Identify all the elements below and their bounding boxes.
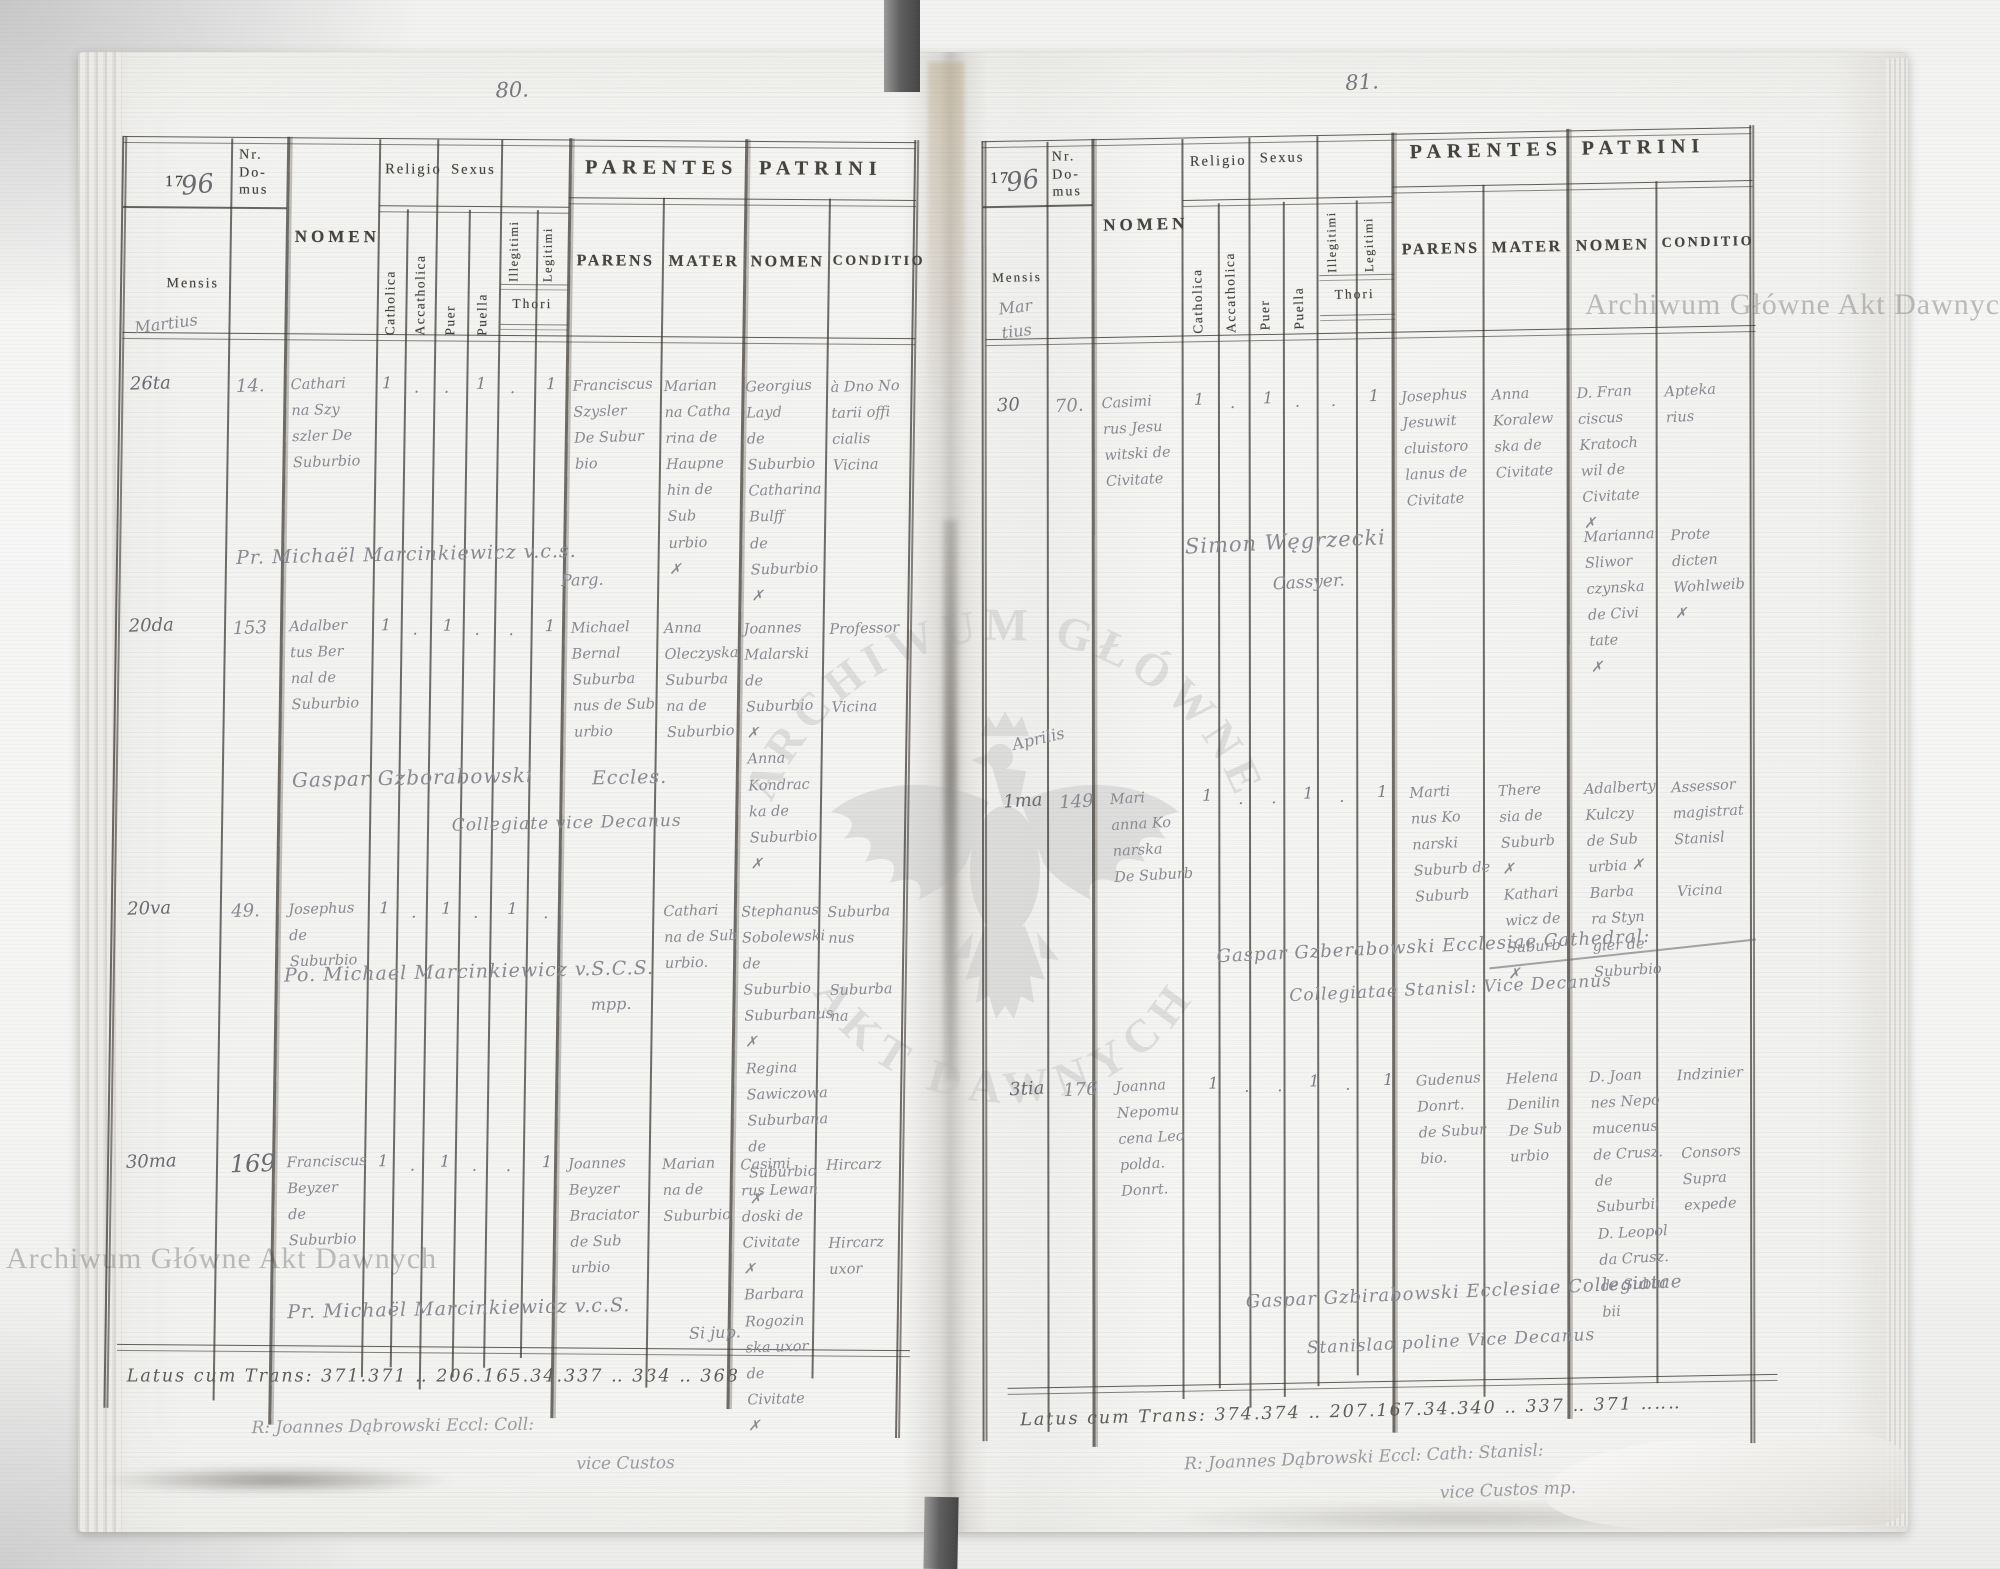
binding-strap-bottom xyxy=(923,1497,958,1569)
tally-mark: 1 xyxy=(1383,1070,1394,1089)
grid-line xyxy=(1181,139,1184,1399)
tally-mark: . xyxy=(509,620,514,639)
tally-mark: 1 xyxy=(441,899,451,918)
record-nomen: Joanna Nepomu cena Leo polda. Donrt. xyxy=(1115,1071,1204,1206)
dirt-smudge xyxy=(95,1466,455,1494)
tally-mark: 1 xyxy=(1309,1071,1320,1090)
grid-line xyxy=(1392,180,1752,193)
header-puella: Puella xyxy=(1289,231,1307,329)
gutter-fold-shadow xyxy=(944,520,957,1080)
tally-mark: . xyxy=(506,1156,511,1175)
record-conditio: Assessor magistrat Stanisl Vicina xyxy=(1671,771,1764,906)
header-sexus: Sexus xyxy=(451,162,496,179)
tally-mark: . xyxy=(1295,392,1300,411)
record-parens: Joannes Beyzer Braciator de Sub urbio xyxy=(568,1149,658,1282)
month-annotation: Mar tius xyxy=(997,294,1036,346)
tally-mark: . xyxy=(1331,391,1336,410)
header-mater: MATER xyxy=(669,253,740,271)
record-mater: Anna Oleczyska Suburba na de Suburbio xyxy=(664,614,742,747)
tally-mark: 1 xyxy=(378,1151,388,1170)
record-mater: Marian na Catha rina de Haupne hin de Su… xyxy=(663,372,743,583)
tally-mark: 1 xyxy=(382,373,392,392)
tally-mark: 1 xyxy=(379,898,389,917)
register-page-left: 80. 17 96 Nr. Do- mus Mensis NOMEN Relig… xyxy=(116,58,918,1472)
signature-flourish: Cassyer. xyxy=(1272,565,1346,600)
priest-signature: Pr. Michaël Marcinkiewicz v.c.s. xyxy=(236,534,577,575)
record-nr: 153 xyxy=(232,612,267,645)
header-illegitimi: Illegitimi xyxy=(507,210,522,282)
header-patrini: PATRINI xyxy=(1581,135,1705,161)
header-legitimi: Legitimi xyxy=(1361,200,1378,272)
tally-mark: 1 xyxy=(507,899,517,918)
tally-mark: . xyxy=(413,619,418,638)
header-sexus: Sexus xyxy=(1260,149,1305,167)
tally-mark: 1 xyxy=(1303,783,1314,802)
header-thori: Thori xyxy=(512,296,552,312)
record-patrini-second: Marianna Sliwor czynska de Civi tate ✗ xyxy=(1583,521,1668,682)
grid-line xyxy=(1046,142,1049,1432)
tally-mark: . xyxy=(444,378,449,397)
record-nomen: Adalber tus Ber nal de Suburbio xyxy=(289,612,376,719)
record-patrini: D. Fran ciscus Kratoch wil de Civitate ✗ xyxy=(1576,377,1663,538)
clerk-signature: R: Joannes Dąbrowski Eccl: Cath: Stanisl… xyxy=(1184,1436,1545,1480)
header-parentes: PARENTES xyxy=(585,156,738,180)
header-patrini: PATRINI xyxy=(759,157,883,181)
grid-line xyxy=(1316,136,1319,1386)
clerk-signature: R: Joannes Dąbrowski Eccl: Coll: xyxy=(251,1410,534,1444)
header-nr-domus: Nr. Do- mus xyxy=(1052,148,1082,201)
record-nr: 176 xyxy=(1062,1073,1098,1107)
header-religio: Religio xyxy=(385,161,442,178)
tally-mark: . xyxy=(411,902,416,921)
record-conditio: à Dno No tarii offi cialis Vicina xyxy=(830,373,913,480)
grid-line xyxy=(1218,203,1221,1388)
tally-mark: . xyxy=(1244,1077,1249,1096)
signature-flourish: Si jup. xyxy=(689,1318,742,1348)
grid-line xyxy=(1248,138,1251,1408)
header-nr-domus: Nr. Do- mus xyxy=(239,147,269,200)
tally-mark: . xyxy=(1230,393,1235,412)
grid-line xyxy=(1391,133,1395,1433)
record-mater: Cathari na de Sub urbio. xyxy=(663,897,739,977)
record-mater: Marian na de Suburbio xyxy=(662,1150,738,1230)
record-date: 26ta xyxy=(130,367,172,401)
priest-signature: Gaspar Gzberabowski Ecclesiae Cathedral: xyxy=(1216,921,1651,974)
priest-signature: Gaspar Gzborabowski xyxy=(292,757,534,798)
record-parens: Gudenus Donrt. de Subur bio. xyxy=(1415,1064,1503,1173)
header-catholica: Catholica xyxy=(382,217,399,335)
priest-signature: Collegiatae Stanisl: Vice Decanus xyxy=(1289,966,1613,1012)
record-parens: Josephus Jesuwit cluistoro lanus de Civi… xyxy=(1400,380,1489,515)
record-date: 30ma xyxy=(125,1145,177,1179)
record-nr: 169 xyxy=(229,1142,276,1187)
page-number: 80. xyxy=(495,71,530,110)
header-parentes: PARENTES xyxy=(1410,138,1564,164)
register-page-right: 81. 17 96 Nr. Do- mus Mensis NOMEN Relig… xyxy=(980,42,1781,1528)
header-conditio: CONDITIO xyxy=(833,254,925,270)
record-date: 1ma xyxy=(1002,784,1043,819)
record-nr: 70. xyxy=(1054,390,1084,424)
clerk-signature: vice Custos xyxy=(576,1448,675,1480)
record-nr: 149 xyxy=(1058,785,1094,819)
tally-mark: . xyxy=(543,903,548,922)
grid-line xyxy=(213,138,233,1400)
record-nr: 49. xyxy=(231,895,261,928)
tally-mark: 1 xyxy=(1208,1073,1219,1092)
record-parens: Michael Bernal Suburba nus de Sub urbio xyxy=(571,613,661,746)
record-nomen: Mari anna Ko narska De Suburb xyxy=(1109,783,1197,892)
priest-signature: Stanislao poline Vice Decanus xyxy=(1306,1320,1596,1364)
record-parens: Marti nus Ko narski Suburb de Suburb xyxy=(1409,776,1498,911)
tally-mark: 1 xyxy=(546,374,556,393)
grid-line xyxy=(1283,202,1286,1397)
tally-mark: . xyxy=(1339,787,1344,806)
tally-mark: 1 xyxy=(440,1152,450,1171)
grid-line xyxy=(268,137,290,1425)
year-handwritten: 96 xyxy=(179,161,217,211)
tally-mark: . xyxy=(414,377,419,396)
grid-line xyxy=(983,204,1093,208)
grid-line xyxy=(1320,314,1395,321)
record-patrini: Joannes Malarski de Suburbio ✗ Anna Kond… xyxy=(743,614,829,877)
record-conditio: Indzinier Consors Supra expede xyxy=(1676,1059,1771,1220)
paper-right-edge xyxy=(1886,58,1908,1526)
tally-mark: . xyxy=(475,620,480,639)
clerk-signature: vice Custos mp. xyxy=(1439,1473,1576,1509)
record-nomen: Casimi rus Jesu witski de Civitate xyxy=(1101,387,1189,496)
header-patrini-nomen: NOMEN xyxy=(751,253,825,271)
record-date: 30 xyxy=(996,389,1021,423)
tally-mark: 1 xyxy=(1202,786,1213,805)
tally-mark: . xyxy=(1345,1075,1350,1094)
record-nomen: Franciscus Beyzer de Suburbio xyxy=(286,1148,373,1255)
tally-mark: . xyxy=(1238,789,1243,808)
header-accatholica: Accatholica xyxy=(1221,215,1239,333)
header-nomen: NOMEN xyxy=(295,227,380,247)
header-mensis: Mensis xyxy=(992,269,1042,286)
grid-line xyxy=(500,284,568,290)
priest-signature: Eccles. xyxy=(592,760,668,796)
priest-signature: Po. Michael Marcinkiewicz v.S.C.S. xyxy=(284,951,655,993)
latus-totals-line: Latus cum Trans: 374.374 ‥ 207.167.34.34… xyxy=(1020,1388,1682,1437)
record-nr: 14. xyxy=(236,370,266,403)
header-patrini-nomen: NOMEN xyxy=(1576,236,1650,256)
header-thori: Thori xyxy=(1335,286,1375,303)
signature-flourish: Parg. xyxy=(561,566,604,596)
header-puer: Puer xyxy=(1256,242,1274,330)
header-illegitimi: Illegitimi xyxy=(1324,201,1341,273)
tally-mark: 1 xyxy=(381,615,391,634)
header-nomen: NOMEN xyxy=(1103,214,1189,236)
record-conditio: Hircarz Hircarz uxor xyxy=(826,1151,910,1284)
tally-mark: . xyxy=(472,1156,477,1175)
record-nomen: Cathari na Szy szler De Suburbio xyxy=(290,370,377,477)
tally-mark: 1 xyxy=(1194,390,1205,409)
record-date: 3tia xyxy=(1008,1073,1045,1107)
page-stack-edge xyxy=(78,52,122,1532)
tally-mark: . xyxy=(510,378,515,397)
record-mater: Anna Koralew ska de Civitate xyxy=(1491,379,1573,487)
tally-mark: 1 xyxy=(443,616,453,635)
tally-mark: 1 xyxy=(1369,386,1380,405)
tally-mark: 1 xyxy=(476,374,486,393)
priest-signature: Pr. Michaël Marcinkiewicz v.c.S. xyxy=(287,1288,631,1329)
grid-line xyxy=(550,138,572,1418)
tally-mark: 1 xyxy=(1263,388,1274,407)
grid-line xyxy=(986,325,1756,346)
header-mater: MATER xyxy=(1492,238,1563,257)
header-mensis: Mensis xyxy=(166,276,219,292)
header-accatholica: Accatholica xyxy=(412,217,429,335)
tally-mark: 1 xyxy=(1377,782,1388,801)
priest-signature: Collegiate vice Decanus xyxy=(451,806,682,841)
tally-mark: 1 xyxy=(545,616,555,635)
record-patrini: Georgius Layd de Suburbio Catharina Bulf… xyxy=(745,372,830,609)
gutter-tan-stain xyxy=(928,62,964,422)
tally-mark: . xyxy=(410,1155,415,1174)
record-date: 20da xyxy=(128,609,174,643)
record-date: 20va xyxy=(127,892,172,926)
header-conditio: CONDITIO xyxy=(1662,234,1755,252)
header-parens: PARENS xyxy=(1402,240,1480,260)
tally-mark: . xyxy=(473,903,478,922)
record-mater: Helena Denilin De Sub urbio xyxy=(1505,1063,1587,1171)
page-number: 81. xyxy=(1344,63,1379,103)
year-handwritten: 96 xyxy=(1003,156,1042,207)
register-scan: ARCHIWUM GŁÓWNE AKT DAWNYCH Archiwum Głó… xyxy=(0,0,2000,1569)
header-religio: Religio xyxy=(1190,153,1247,171)
grid-line xyxy=(1356,200,1359,1375)
grid-line xyxy=(569,197,916,206)
grid-line xyxy=(122,332,915,345)
month-annotation: Aprilis xyxy=(1009,719,1067,759)
header-catholica: Catholica xyxy=(1188,216,1206,334)
record-conditio: Suburba nus Suburba na xyxy=(827,898,911,1031)
header-parens: PARENS xyxy=(577,252,655,270)
header-puella: Puella xyxy=(474,236,491,336)
record-conditio: Professor Vicina xyxy=(829,615,912,722)
tally-mark: 1 xyxy=(542,1152,552,1171)
record-patrini: Casimi rus Lewan doski de Civitate ✗ Bar… xyxy=(740,1150,826,1439)
record-conditio-second: Prote dicten Wohlweib ✗ xyxy=(1670,519,1758,628)
tally-mark: . xyxy=(1271,788,1276,807)
tally-mark: . xyxy=(1277,1076,1282,1095)
record-parens: Franciscus Szysler De Subur bio xyxy=(572,371,661,478)
header-puer: Puer xyxy=(442,246,458,336)
latus-totals-line: Latus cum Trans: 371.371 ‥ 206.165.34.33… xyxy=(127,1362,740,1394)
header-legitimi: Legitimi xyxy=(541,210,556,282)
record-conditio: Apteka rius xyxy=(1664,375,1753,432)
signature-flourish: mpp. xyxy=(590,990,632,1020)
